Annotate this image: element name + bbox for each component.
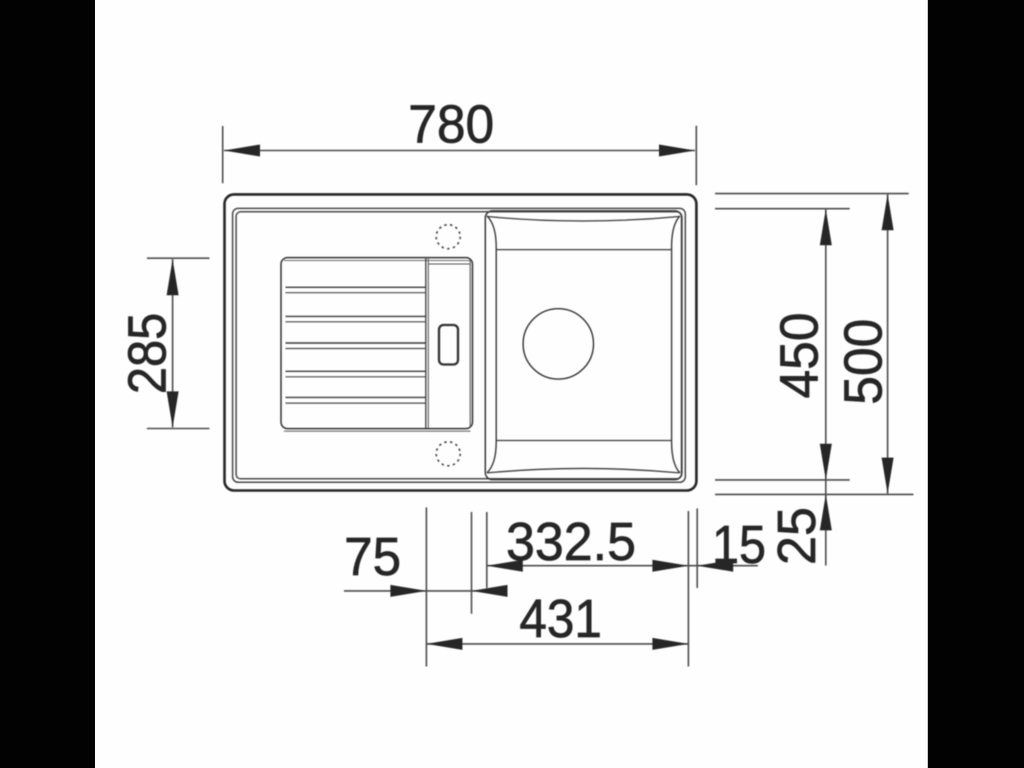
svg-text:450: 450 (771, 313, 830, 399)
svg-text:500: 500 (835, 319, 894, 405)
svg-text:15: 15 (712, 516, 766, 575)
svg-text:285: 285 (119, 313, 178, 395)
svg-text:25: 25 (768, 507, 827, 565)
svg-text:431: 431 (519, 590, 602, 649)
svg-text:75: 75 (344, 528, 401, 587)
svg-text:780: 780 (408, 96, 494, 155)
svg-text:332.5: 332.5 (506, 513, 636, 572)
